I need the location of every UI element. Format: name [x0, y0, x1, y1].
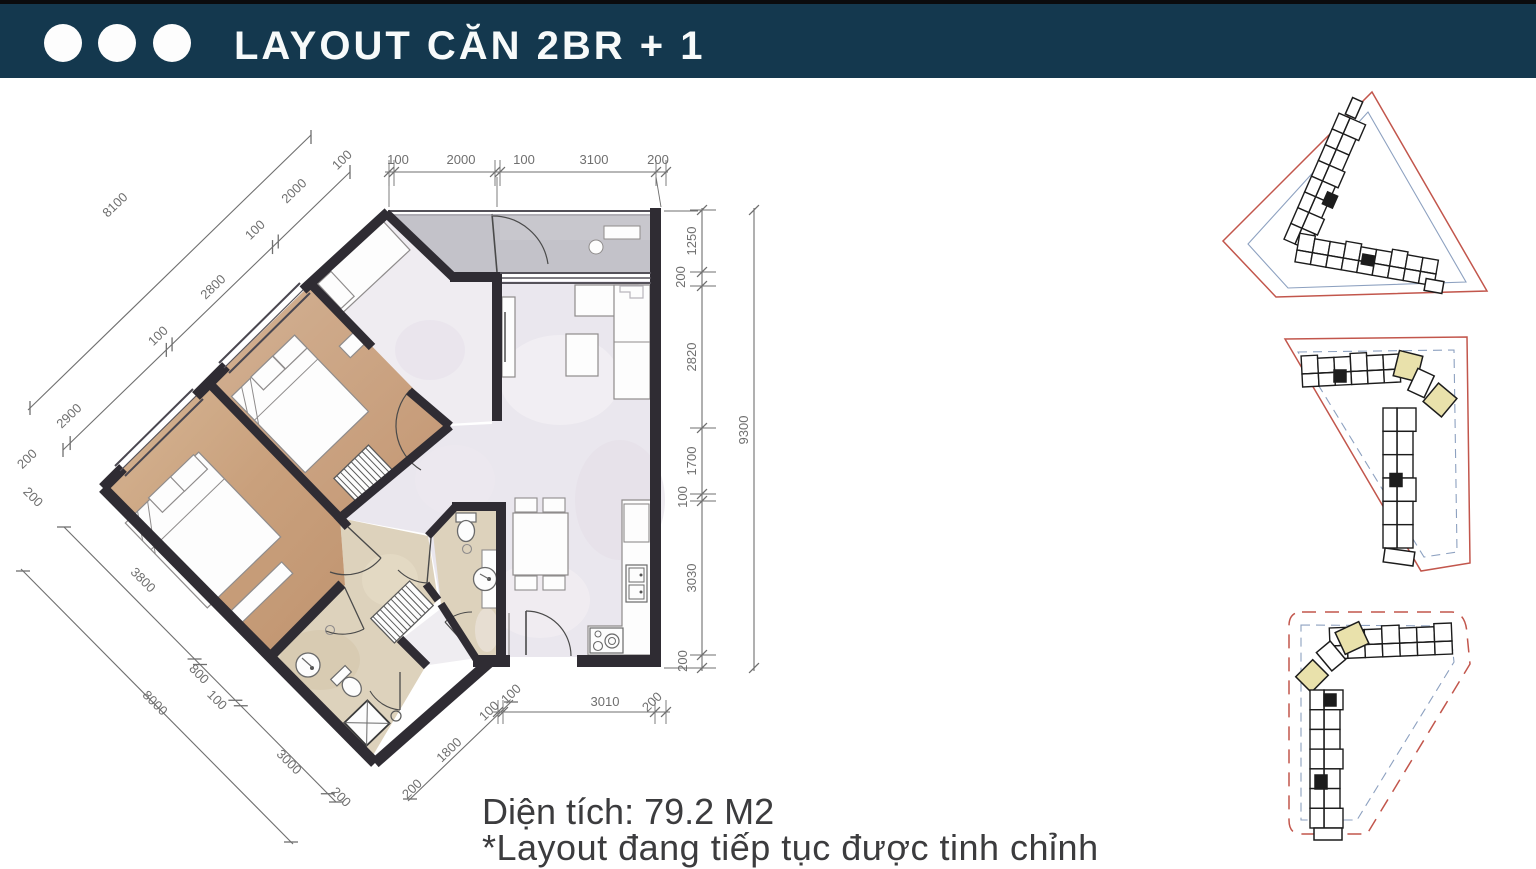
svg-text:3030: 3030 [684, 564, 699, 593]
svg-text:100: 100 [387, 152, 409, 167]
svg-text:2800: 2800 [197, 271, 228, 302]
svg-text:100: 100 [675, 486, 690, 508]
svg-text:2820: 2820 [684, 343, 699, 372]
svg-text:8000: 8000 [140, 687, 171, 718]
svg-text:1800: 1800 [433, 734, 464, 765]
svg-text:200: 200 [639, 689, 665, 715]
svg-text:200: 200 [14, 446, 40, 472]
svg-text:100: 100 [242, 217, 268, 243]
svg-text:100: 100 [498, 681, 524, 707]
svg-text:3000: 3000 [274, 746, 305, 777]
svg-text:1700: 1700 [684, 447, 699, 476]
svg-text:200: 200 [675, 650, 690, 672]
svg-text:3100: 3100 [580, 152, 609, 167]
svg-text:2000: 2000 [447, 152, 476, 167]
svg-text:9300: 9300 [736, 416, 751, 445]
svg-text:200: 200 [20, 484, 46, 510]
svg-text:1250: 1250 [684, 227, 699, 256]
svg-text:200: 200 [673, 266, 688, 288]
svg-text:800: 800 [186, 661, 212, 687]
svg-text:100: 100 [329, 147, 355, 173]
svg-text:200: 200 [328, 784, 354, 810]
svg-text:8100: 8100 [99, 189, 130, 220]
svg-text:200: 200 [647, 152, 669, 167]
svg-text:2000: 2000 [278, 175, 309, 206]
svg-text:100: 100 [145, 323, 171, 349]
svg-text:100: 100 [513, 152, 535, 167]
svg-text:200: 200 [399, 776, 425, 802]
svg-text:3800: 3800 [128, 564, 159, 595]
svg-text:2900: 2900 [53, 400, 84, 431]
svg-text:3010: 3010 [591, 694, 620, 709]
